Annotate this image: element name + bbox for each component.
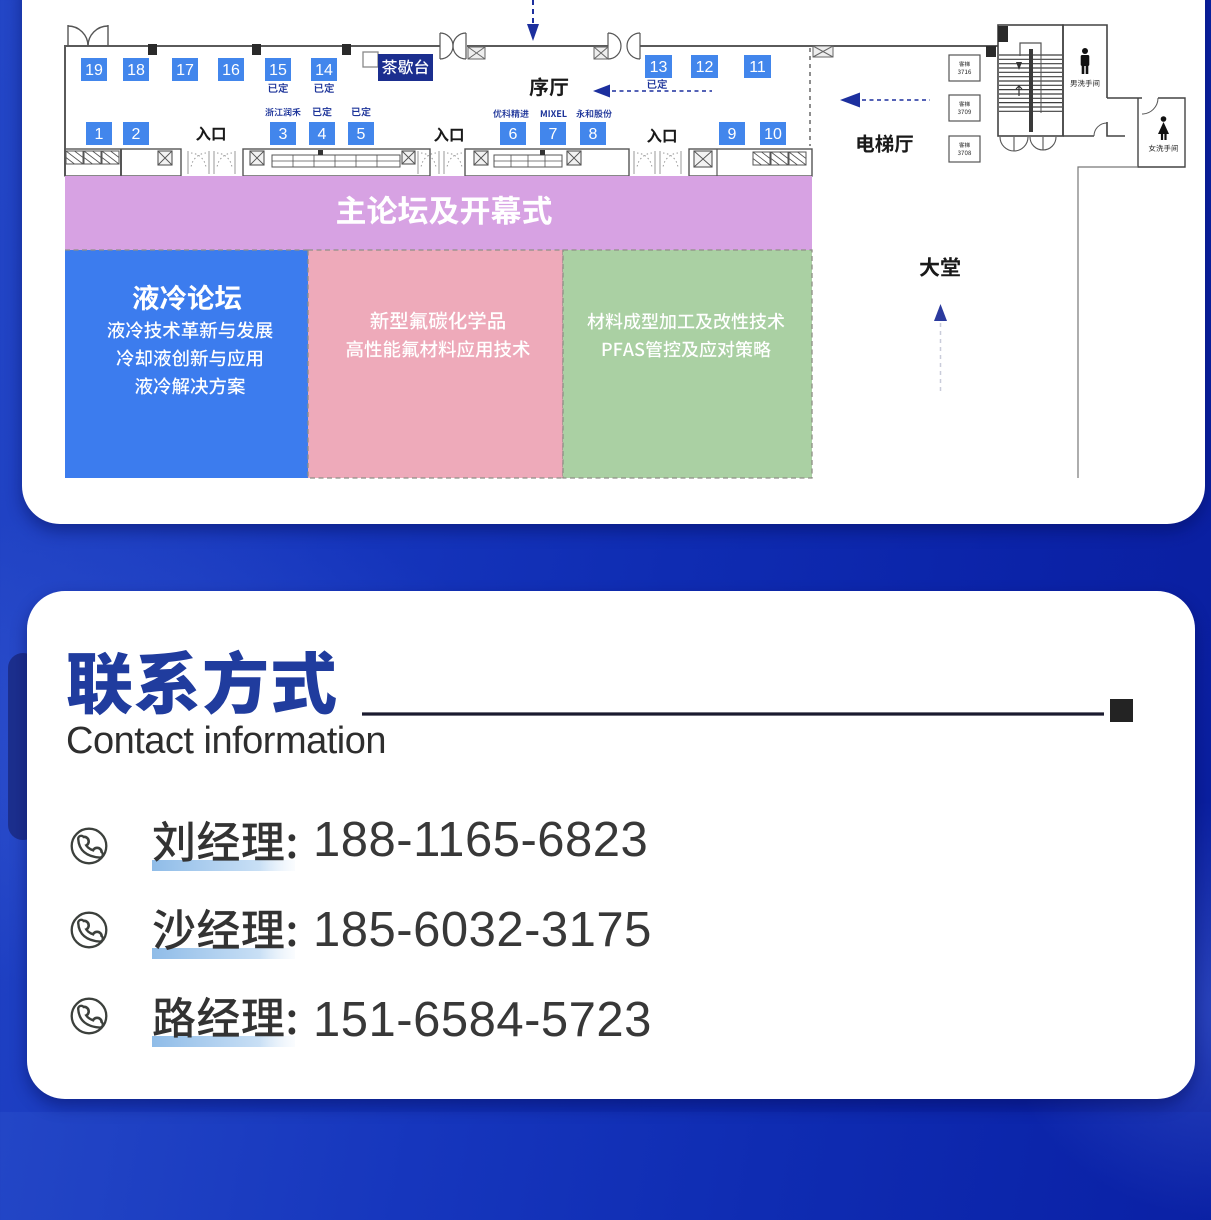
svg-text:1: 1 xyxy=(95,126,104,143)
svg-text:17: 17 xyxy=(176,62,194,79)
svg-text:8: 8 xyxy=(589,126,598,143)
svg-text:12: 12 xyxy=(696,59,714,76)
svg-text:16: 16 xyxy=(222,62,240,79)
svg-text:18: 18 xyxy=(127,62,145,79)
svg-text:5: 5 xyxy=(357,126,366,143)
svg-text:10: 10 xyxy=(764,126,782,143)
svg-text:15: 15 xyxy=(269,62,287,79)
svg-text:6: 6 xyxy=(509,126,518,143)
svg-text:2: 2 xyxy=(132,126,141,143)
svg-text:14: 14 xyxy=(315,62,333,79)
svg-text:9: 9 xyxy=(728,126,737,143)
svg-text:19: 19 xyxy=(85,62,103,79)
svg-text:7: 7 xyxy=(549,126,558,143)
svg-text:3: 3 xyxy=(279,126,288,143)
svg-text:13: 13 xyxy=(650,59,668,76)
svg-text:11: 11 xyxy=(749,59,766,76)
svg-text:4: 4 xyxy=(318,126,327,143)
